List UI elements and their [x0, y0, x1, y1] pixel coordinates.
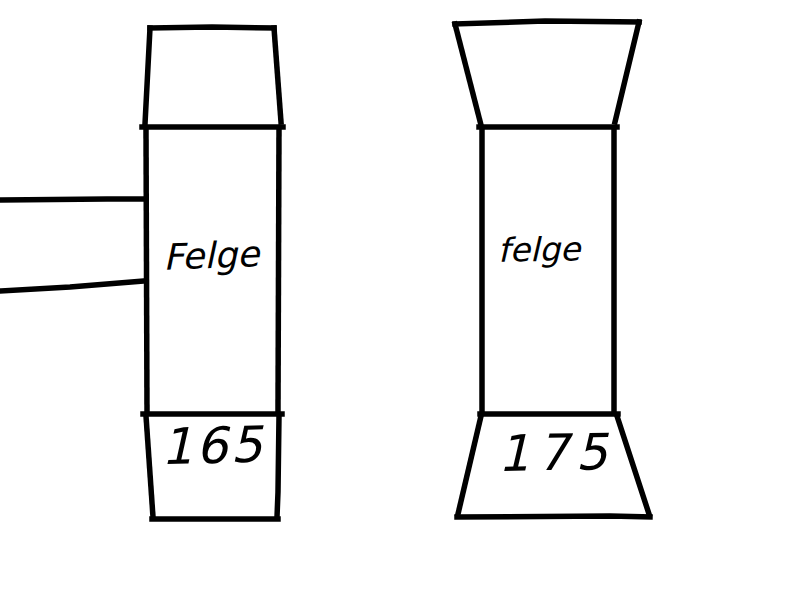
left-axle-line-upper	[1, 199, 144, 200]
right-rim-label: felge	[489, 222, 590, 276]
right-flare-left-edge	[458, 416, 481, 514]
right-width-label: 175	[491, 423, 622, 483]
left-tread-top-edge	[150, 27, 274, 28]
left-bottom-right-edge	[277, 416, 279, 517]
right-bottom-edge	[457, 516, 650, 517]
right-tread-top-edge	[455, 21, 639, 24]
left-tread-left-slant	[145, 28, 150, 124]
left-axle-line-lower	[1, 281, 144, 291]
sketch-lines	[0, 0, 807, 605]
right-flare-right-edge	[617, 416, 649, 514]
left-rim-label: Felge	[154, 227, 268, 283]
drawing-canvas: Felge 165 felge 175	[0, 0, 807, 605]
left-tread-right-slant	[274, 28, 281, 122]
right-tread-right-slant	[615, 22, 639, 122]
left-body-right-edge	[278, 129, 279, 412]
left-body-left-edge	[146, 129, 147, 412]
left-bottom-left-edge	[146, 416, 153, 517]
right-tread-left-slant	[455, 24, 481, 125]
left-width-label: 165	[159, 416, 266, 477]
